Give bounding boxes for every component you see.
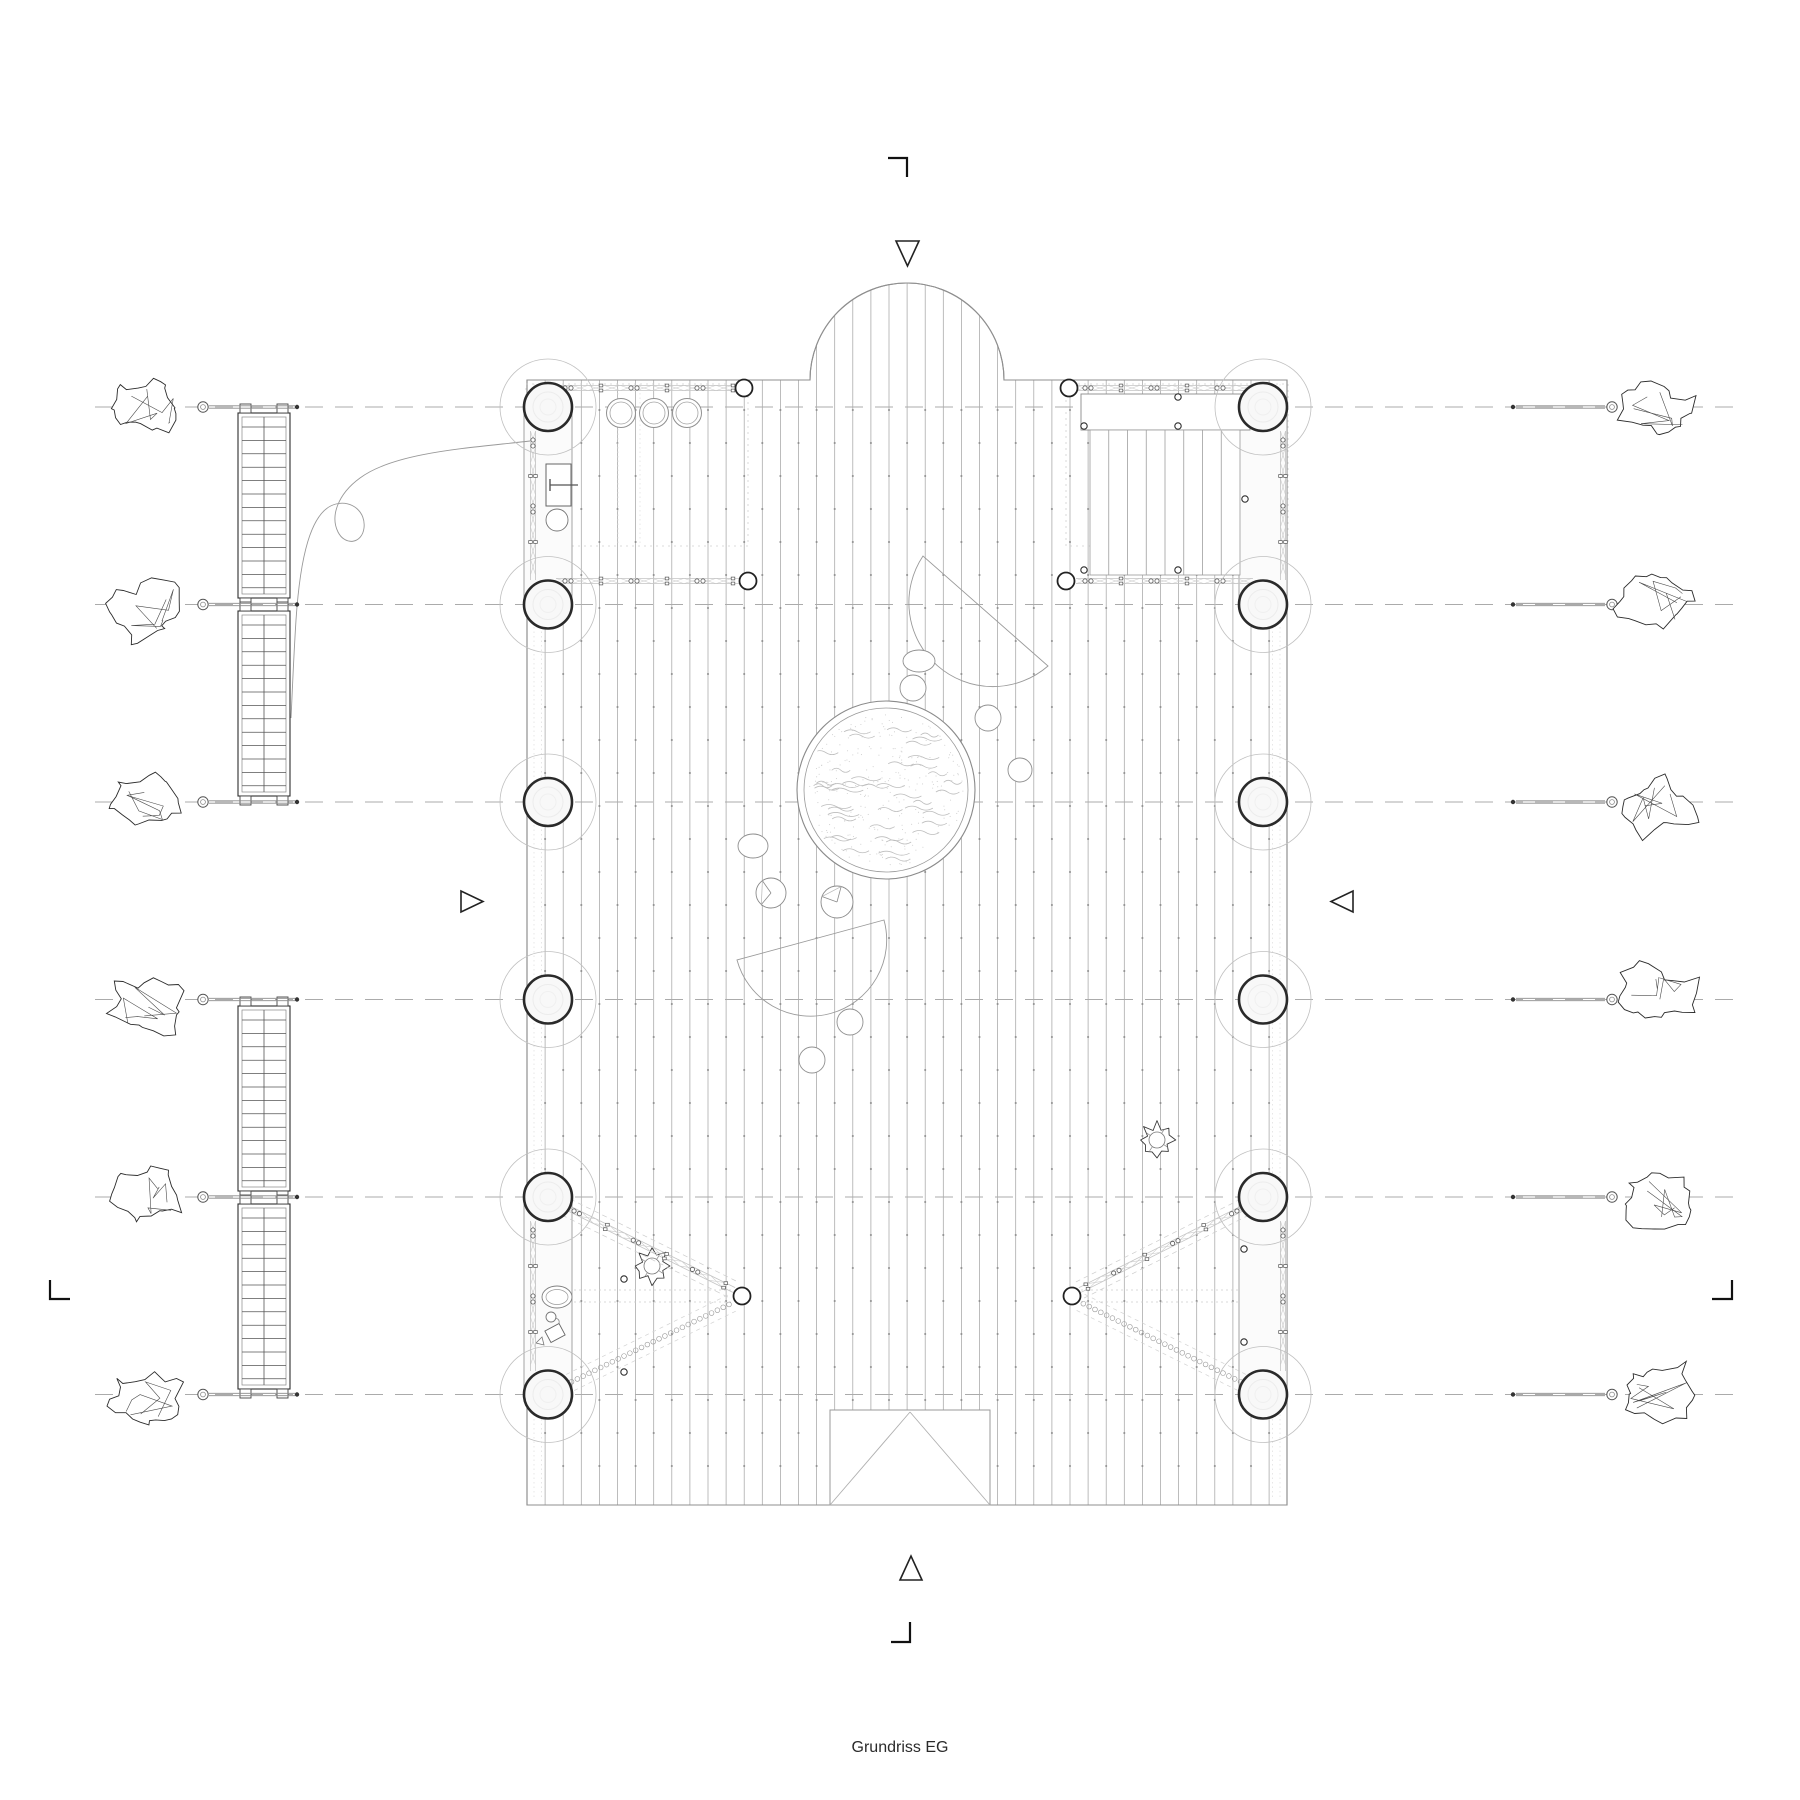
gangway-ladders	[238, 404, 290, 1398]
floor-plan-sheet: Grundriss EG	[0, 0, 1800, 1800]
section-arrow-up-icon	[900, 1556, 922, 1580]
round-pool	[797, 701, 975, 879]
crop-mark-left-icon	[50, 1280, 70, 1299]
section-arrow-right-icon	[461, 891, 483, 912]
architectural-floor-plan: Grundriss EG	[0, 0, 1800, 1800]
section-arrow-down-icon	[896, 241, 919, 266]
crop-mark-top-icon	[888, 158, 907, 177]
section-arrow-left-icon	[1331, 891, 1353, 912]
crop-mark-right-icon	[1712, 1280, 1732, 1299]
crop-mark-bottom-icon	[891, 1622, 910, 1642]
plan-title: Grundriss EG	[852, 1739, 949, 1756]
raised-platform	[1081, 394, 1250, 575]
